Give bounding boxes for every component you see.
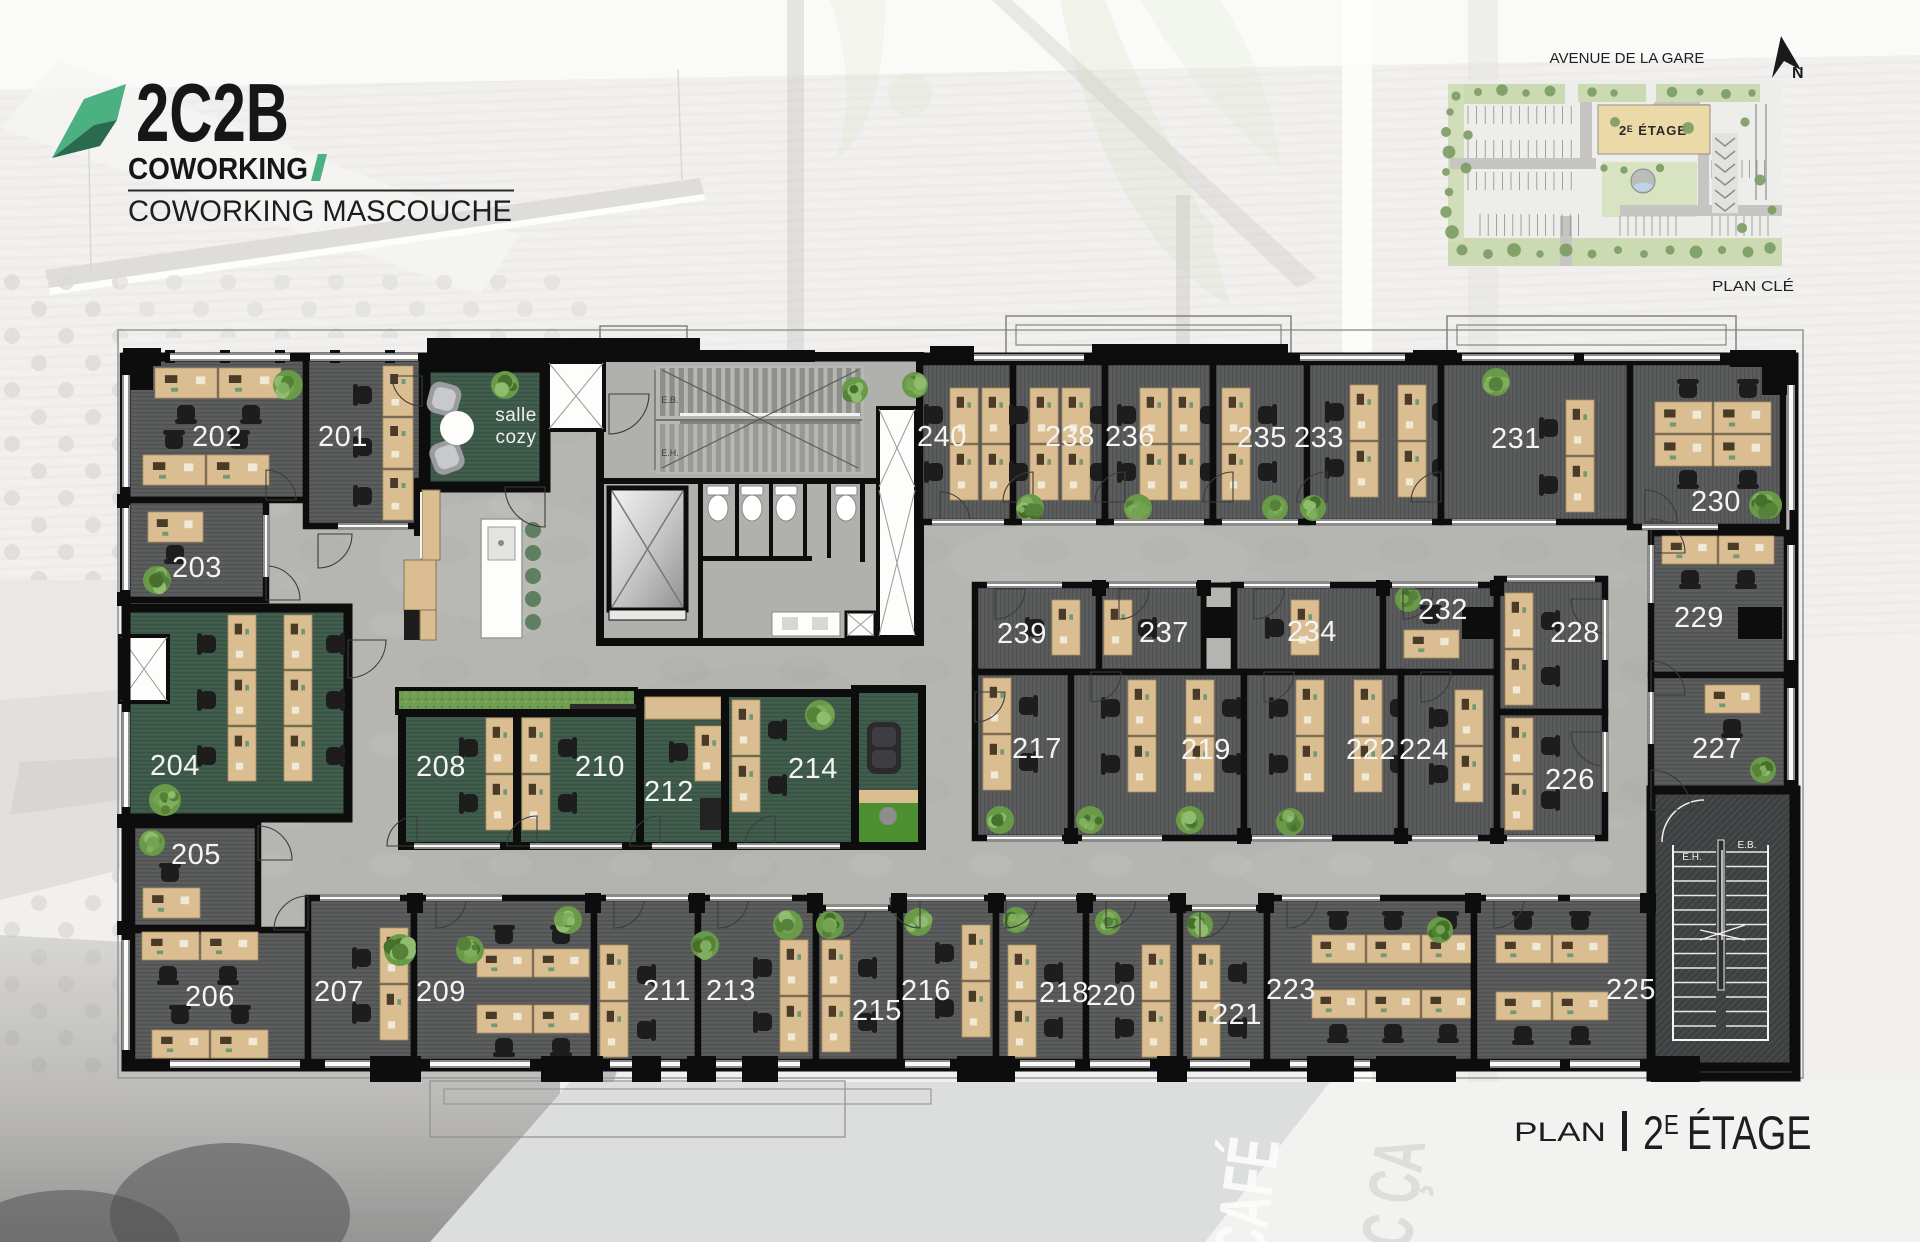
svg-text:233: 233 (1294, 422, 1344, 454)
svg-text:214: 214 (788, 753, 838, 785)
svg-text:210: 210 (575, 751, 625, 783)
svg-text:227: 227 (1692, 733, 1742, 765)
svg-text:204: 204 (150, 750, 200, 782)
svg-text:222: 222 (1346, 734, 1396, 766)
svg-text:E.H.: E.H. (1682, 852, 1701, 863)
svg-text:206: 206 (185, 981, 235, 1013)
svg-text:220: 220 (1086, 980, 1136, 1012)
svg-text:207: 207 (314, 976, 364, 1008)
svg-text:202: 202 (192, 421, 242, 453)
svg-text:226: 226 (1545, 764, 1595, 796)
svg-text:N: N (1792, 65, 1804, 82)
svg-text:E.H.: E.H. (661, 448, 679, 458)
svg-text:COWORKING MASCOUCHE: COWORKING MASCOUCHE (128, 195, 512, 228)
svg-text:236: 236 (1105, 421, 1155, 453)
svg-text:cozy: cozy (495, 427, 536, 448)
svg-text:239: 239 (997, 618, 1047, 650)
svg-text:231: 231 (1491, 423, 1541, 455)
svg-text:216: 216 (901, 975, 951, 1007)
svg-text:205: 205 (171, 839, 221, 871)
svg-text:237: 237 (1139, 617, 1189, 649)
svg-text:208: 208 (416, 751, 466, 783)
svg-text:PLAN CLÉ: PLAN CLÉ (1712, 278, 1794, 295)
svg-text:228: 228 (1550, 617, 1600, 649)
svg-text:215: 215 (852, 995, 902, 1027)
svg-text:209: 209 (416, 976, 466, 1008)
svg-text:240: 240 (917, 421, 967, 453)
svg-text:232: 232 (1418, 594, 1468, 626)
svg-text:PLAN: PLAN (1514, 1117, 1606, 1147)
svg-text:219: 219 (1181, 734, 1231, 766)
svg-text:217: 217 (1012, 733, 1062, 765)
svg-text:234: 234 (1287, 616, 1337, 648)
svg-text:211: 211 (643, 975, 691, 1007)
svg-text:2C2B: 2C2B (136, 66, 289, 159)
svg-text:2ᴱ ÉTAGE: 2ᴱ ÉTAGE (1619, 123, 1687, 138)
svg-text:213: 213 (706, 975, 756, 1007)
svg-text:223: 223 (1266, 974, 1316, 1006)
svg-text:E.B.: E.B. (661, 395, 678, 405)
svg-text:229: 229 (1674, 602, 1724, 634)
svg-text:225: 225 (1606, 974, 1656, 1006)
svg-text:224: 224 (1399, 734, 1449, 766)
svg-text:221: 221 (1212, 999, 1262, 1031)
svg-text:218: 218 (1039, 977, 1089, 1009)
svg-text:salle: salle (495, 405, 537, 426)
svg-text:201: 201 (318, 421, 368, 453)
svg-text:212: 212 (644, 776, 694, 808)
svg-text:COWORKING: COWORKING (128, 151, 308, 186)
svg-text:E.B.: E.B. (1738, 840, 1757, 851)
svg-text:AVENUE DE LA GARE: AVENUE DE LA GARE (1550, 50, 1705, 67)
svg-text:203: 203 (172, 552, 222, 584)
svg-text:230: 230 (1691, 486, 1741, 518)
svg-text:238: 238 (1045, 421, 1095, 453)
svg-text:235: 235 (1237, 422, 1287, 454)
